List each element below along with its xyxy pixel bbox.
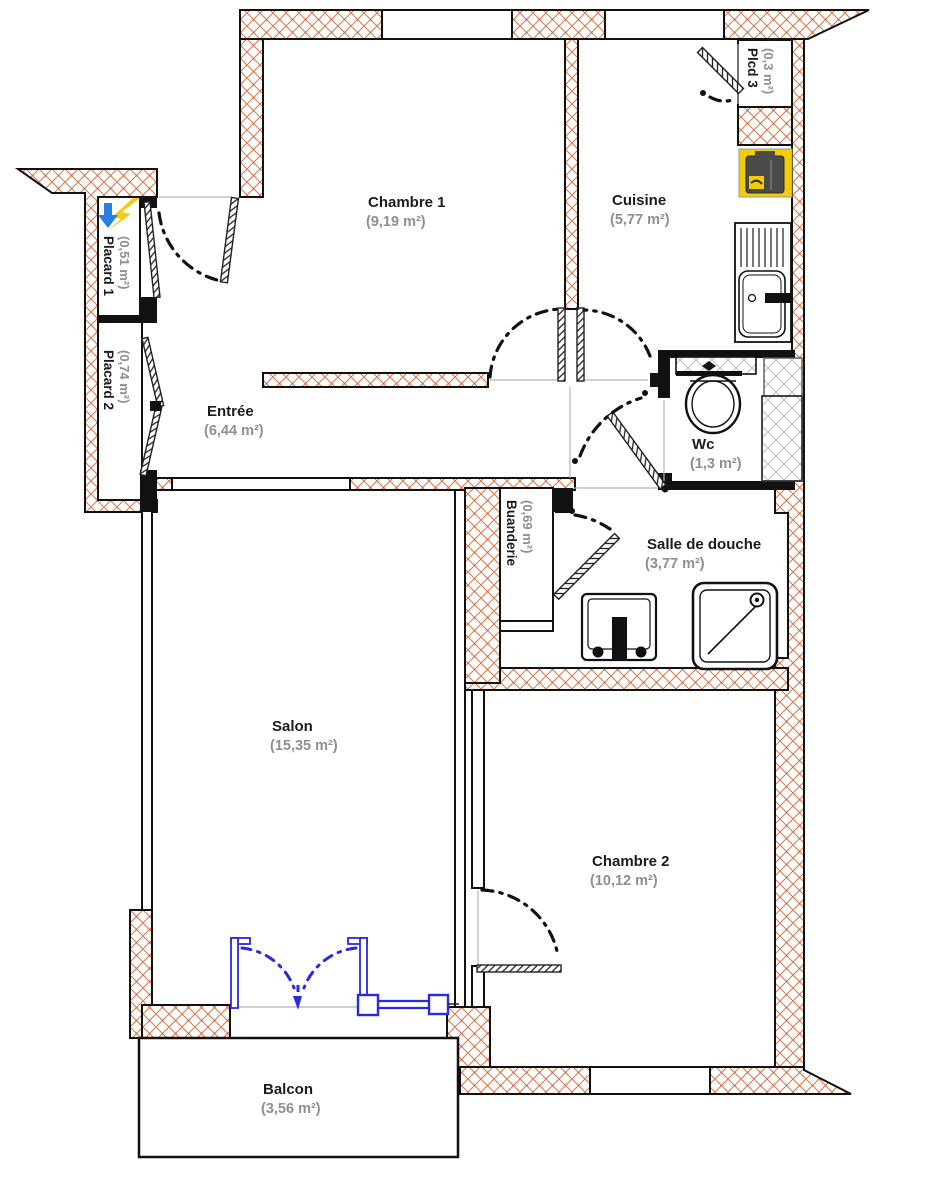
label-placard2-name: Placard 2	[101, 350, 116, 410]
wall-salon-top-open	[172, 478, 350, 490]
window-chambre2	[590, 1067, 710, 1094]
label-entree-name: Entrée	[207, 403, 254, 420]
wc-wall-bottom	[658, 481, 795, 490]
label-buanderie-name: Buanderie	[504, 500, 519, 567]
placard-stub-middle	[140, 297, 157, 323]
washbasin-icon	[582, 594, 656, 660]
label-placard3-area: (0,3 m²)	[761, 48, 776, 94]
salle-de-douche-door	[554, 508, 620, 599]
fixtures	[98, 149, 792, 669]
wall-chambre2-left-upper	[472, 690, 484, 888]
balcony-window-icon	[358, 995, 459, 1015]
label-chambre1-name: Chambre 1	[368, 194, 446, 211]
wc-door	[572, 390, 669, 493]
placard1-door	[144, 202, 160, 298]
buanderie-stub	[553, 488, 567, 512]
label-salle-de-douche-area: (3,77 m²)	[645, 556, 705, 572]
placard2-box	[98, 322, 142, 500]
wall-top	[240, 10, 869, 39]
french-doors-icon	[231, 938, 367, 1010]
label-placard3-name: Plcd 3	[745, 48, 760, 88]
label-salon-area: (15,35 m²)	[270, 738, 338, 754]
duct-box-top	[764, 358, 802, 396]
label-placard1-area: (0,51 m²)	[117, 236, 132, 289]
label-placard1-name: Placard 1	[101, 236, 116, 297]
shower-tray-icon	[693, 583, 777, 669]
label-balcon-name: Balcon	[263, 1081, 313, 1098]
wall-salon-left-upper	[142, 490, 152, 910]
placard2-doors	[140, 337, 164, 476]
label-chambre2-name: Chambre 2	[592, 853, 670, 870]
floor-plan-svg: Chambre 1 (9,19 m²) Cuisine (5,77 m²) En…	[0, 0, 943, 1183]
entry-door	[159, 198, 238, 283]
wall-salon-chambre2	[455, 490, 465, 1007]
label-placard2-area: (0,74 m²)	[117, 350, 132, 403]
label-wc-name: Wc	[692, 436, 715, 453]
label-salle-de-douche-name: Salle de douche	[647, 536, 761, 553]
wall-chambre1-bottom	[263, 373, 488, 387]
window-chambre1	[382, 10, 512, 39]
wall-ch1-cuisine-divider	[565, 39, 578, 309]
label-cuisine-name: Cuisine	[612, 192, 666, 209]
placard-divider	[98, 316, 142, 322]
label-balcon-area: (3,56 m²)	[261, 1101, 321, 1117]
label-cuisine-area: (5,77 m²)	[610, 212, 670, 228]
toilet-icon	[676, 357, 756, 433]
stove-icon	[739, 149, 792, 197]
wall-salon-bottom	[142, 1005, 230, 1038]
chambre1-door	[490, 308, 565, 381]
kitchen-sink-icon	[735, 223, 792, 342]
placard3-door	[698, 48, 744, 102]
doors	[140, 48, 743, 972]
room-labels: Chambre 1 (9,19 m²) Cuisine (5,77 m²) En…	[101, 48, 776, 1117]
label-salon-name: Salon	[272, 718, 313, 735]
window-cuisine	[605, 10, 724, 39]
label-chambre1-area: (9,19 m²)	[366, 214, 426, 230]
balcony-features	[231, 938, 459, 1015]
label-chambre2-area: (10,12 m²)	[590, 873, 658, 889]
floor-plan: Chambre 1 (9,19 m²) Cuisine (5,77 m²) En…	[0, 0, 943, 1183]
chambre2-door	[477, 890, 561, 972]
wc-wall-left	[658, 350, 670, 398]
label-wc-area: (1,3 m²)	[690, 456, 742, 472]
cuisine-door	[577, 308, 650, 381]
placard-stub-bottom	[140, 470, 157, 512]
label-entree-area: (6,44 m²)	[204, 423, 264, 439]
duct-box	[762, 396, 802, 481]
buanderie-bottom-wall	[500, 621, 553, 631]
label-buanderie-area: (0,69 m²)	[520, 500, 535, 553]
wall-buanderie-left	[465, 488, 500, 683]
wall-bath-chambre2	[455, 668, 788, 690]
wall-under-plcd3	[738, 107, 792, 145]
wall-chambre1-left	[240, 39, 263, 197]
